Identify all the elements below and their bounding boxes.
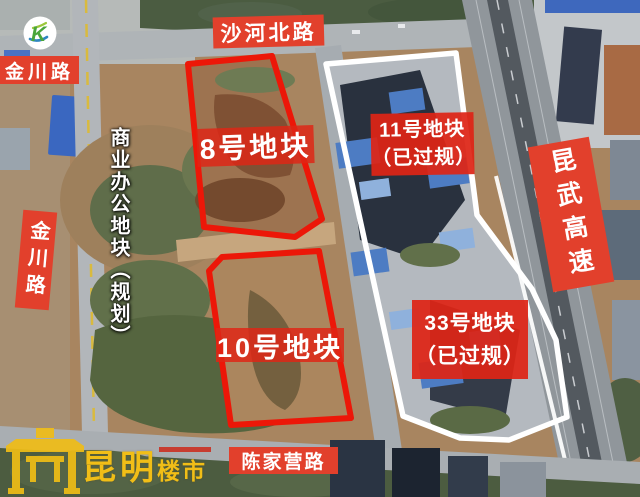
parcel-11-name: 11号地块 <box>371 115 474 145</box>
parcel-outlines <box>0 0 640 497</box>
road-label-jinchuan-top: 金川路 <box>0 56 79 84</box>
planning-note: 商业办公地块（规划） <box>104 127 133 359</box>
annotated-satellite-map: 沙河北路 金川路 金川路 昆武高速 陈家营路 8号地块 10号地块 11号地块 … <box>0 0 640 497</box>
watermark-brand-sub: 楼市 <box>157 452 207 486</box>
parcel-33-label: 33号地块 （已过规） <box>412 300 528 379</box>
parcel-11-33-outline <box>326 53 567 440</box>
road-label-chenjiaying: 陈家营路 <box>229 447 338 474</box>
logo-letter: K <box>31 23 48 46</box>
parcel-11-label: 11号地块 （已过规） <box>370 112 474 176</box>
watermark-gate-icon <box>6 426 84 494</box>
parcel-33-name: 33号地块 <box>412 307 528 340</box>
watermark-brand-main: 昆明 <box>82 440 158 489</box>
parcel-11-status: （已过规） <box>371 143 474 173</box>
parcel-33-status: （已过规） <box>412 340 528 373</box>
parcel-8-label: 8号地块 <box>196 125 314 167</box>
site-logo-icon: K <box>23 16 57 50</box>
road-label-shahe-north: 沙河北路 <box>213 15 325 49</box>
parcel-10-label: 10号地块 <box>216 328 344 362</box>
